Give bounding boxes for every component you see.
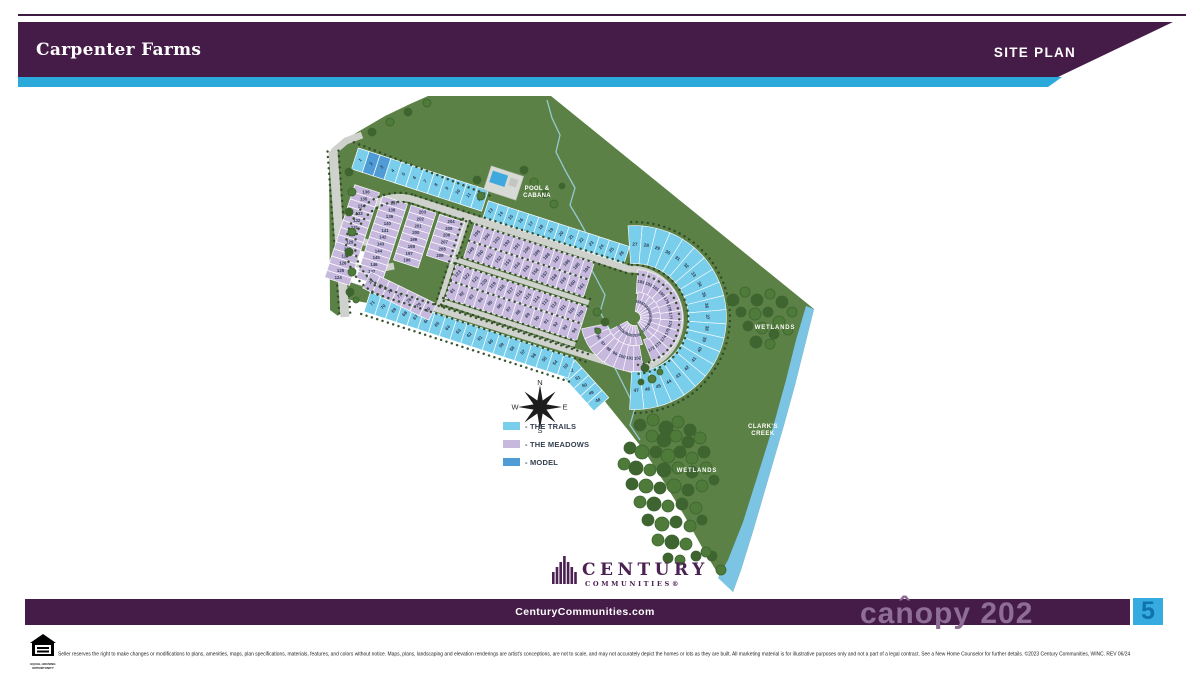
legal-disclaimer: Seller reserves the right to make change…: [58, 643, 1188, 661]
tree: [670, 516, 682, 528]
lot-number: 27: [632, 242, 638, 247]
tree: [626, 478, 638, 490]
tree: [701, 547, 711, 557]
tree: [661, 449, 675, 463]
tree: [618, 458, 630, 470]
equal-housing-caption-2: OPPORTUNITY: [28, 667, 58, 671]
tree: [638, 379, 644, 385]
tree: [694, 432, 706, 444]
lot-number: 47: [634, 388, 640, 393]
tree: [672, 416, 684, 428]
tree: [635, 445, 649, 459]
lot-number: 140: [384, 221, 392, 226]
tree: [345, 168, 353, 176]
lot-number: 125: [337, 268, 345, 273]
lot-number: 207: [441, 240, 449, 245]
legal-disclaimer-text: Seller reserves the right to make change…: [58, 652, 1130, 657]
tree: [348, 228, 356, 236]
lot-number: 146: [370, 262, 378, 267]
lot-number: 201: [414, 223, 422, 228]
century-communities-logo: CENTURYCOMMUNITIES®: [552, 556, 709, 588]
tree: [667, 479, 681, 493]
site-plan-map: 1234567891011121314151617181920212223242…: [0, 0, 1200, 675]
tree: [404, 108, 412, 116]
tree: [682, 484, 694, 496]
compass-e: E: [562, 403, 567, 412]
tree: [647, 497, 661, 511]
tree: [348, 268, 356, 276]
tree: [386, 118, 394, 126]
tree: [652, 534, 664, 546]
legend-swatch-meadows: [503, 440, 520, 448]
wetlands-label: WETLANDS: [677, 468, 717, 474]
lot-number: 139: [386, 214, 394, 219]
tree: [684, 520, 696, 532]
tree: [473, 176, 481, 184]
tree: [634, 419, 646, 431]
logo-subtext: COMMUNITIES®: [585, 580, 681, 588]
compass-w: W: [511, 403, 519, 412]
tree: [686, 452, 698, 464]
tree: [648, 375, 656, 383]
lot-number: 143: [377, 242, 385, 247]
tree: [601, 318, 609, 326]
lot-number: 144: [375, 248, 383, 253]
lot-number: 196: [403, 258, 411, 263]
tree: [763, 307, 773, 317]
tree: [641, 364, 649, 372]
tree: [765, 289, 775, 299]
tree: [751, 294, 763, 306]
legend-label-model: - MODEL: [525, 458, 558, 467]
tree: [657, 369, 663, 375]
tree: [684, 424, 696, 436]
lot-number: 202: [417, 217, 425, 222]
tree: [696, 480, 708, 492]
tree: [650, 446, 662, 458]
tree: [348, 188, 356, 196]
tree: [530, 178, 538, 186]
canopy-watermark: can̂opy 202: [860, 597, 1033, 631]
lot-number: 138: [388, 207, 396, 212]
lot-number: 124: [335, 275, 343, 280]
tree: [749, 308, 761, 320]
tree: [624, 442, 636, 454]
pool-cabana-label: CABANA: [523, 193, 551, 199]
tree: [674, 446, 686, 458]
logo-wordmark: CENTURY: [582, 560, 709, 580]
tree: [423, 99, 431, 107]
lot-number: 145: [373, 255, 381, 260]
legend-swatch-model: [503, 458, 520, 466]
lot-number: 199: [410, 237, 418, 242]
wetlands-label: WETLANDS: [755, 325, 795, 331]
tree: [644, 464, 656, 476]
tree: [665, 535, 679, 549]
lot-number: 177: [668, 312, 673, 320]
tree: [642, 514, 654, 526]
tree: [670, 430, 682, 442]
tree: [655, 517, 669, 531]
tree: [716, 565, 726, 575]
tree: [646, 430, 658, 442]
lot-number: 205: [445, 226, 453, 231]
tree: [346, 288, 354, 296]
tree: [477, 192, 485, 200]
lot-number: 135: [360, 197, 368, 202]
clarks-creek-label: CREEK: [751, 431, 775, 437]
tree: [736, 307, 746, 317]
tree: [662, 500, 674, 512]
lot-number: 102: [634, 355, 642, 361]
tree: [634, 496, 646, 508]
lot-number: 204: [447, 219, 455, 224]
tree: [345, 208, 353, 216]
tree: [698, 446, 710, 458]
tree: [750, 336, 762, 348]
site-plan-page: Carpenter Farms SITE PLAN 12345678910111…: [0, 0, 1200, 675]
lot-number: 197: [406, 251, 414, 256]
tree: [743, 321, 753, 331]
tree: [682, 436, 694, 448]
tree: [787, 307, 797, 317]
tree: [776, 296, 788, 308]
tree: [520, 166, 528, 174]
lot-number: 203: [419, 210, 427, 215]
lot-number: 209: [436, 253, 444, 258]
equal-housing-icon: [30, 634, 56, 658]
lot-number: 136: [362, 189, 370, 194]
tree: [654, 482, 666, 494]
lot-number: 37: [705, 314, 710, 320]
lot-number: 141: [381, 228, 389, 233]
lot-number: 206: [443, 233, 451, 238]
lot-number: 208: [439, 246, 447, 251]
tree: [639, 479, 653, 493]
equal-housing-logo: EQUAL HOUSING OPPORTUNITY: [28, 634, 58, 670]
tree: [727, 294, 739, 306]
tree: [676, 498, 688, 510]
tree: [368, 128, 376, 136]
lot-number: 142: [379, 235, 387, 240]
tree: [629, 461, 643, 475]
tree: [697, 515, 707, 525]
compass-n: N: [537, 378, 542, 387]
tree: [680, 538, 692, 550]
tree: [740, 287, 750, 297]
tree: [765, 339, 775, 349]
tree: [593, 308, 601, 316]
pool-cabana-label: POOL &: [525, 186, 550, 192]
legend-label-meadows: - THE MEADOWS: [525, 440, 589, 449]
tree: [559, 183, 565, 189]
canopy-watermark-square: 5: [1133, 598, 1163, 625]
tree: [657, 433, 671, 447]
tree: [550, 200, 558, 208]
clarks-creek-label: CLARK'S: [748, 424, 778, 430]
tree: [657, 463, 671, 477]
legend-swatch-trails: [503, 422, 520, 430]
legend-label-trails: - THE TRAILS: [525, 422, 576, 431]
tree: [595, 328, 601, 334]
tree: [690, 502, 702, 514]
lot-number: 126: [339, 261, 347, 266]
tree: [709, 475, 719, 485]
lot-number: 198: [408, 244, 416, 249]
lot-number: 200: [412, 230, 420, 235]
tree: [647, 414, 659, 426]
legend: - THE TRAILS- THE MEADOWS- MODEL: [503, 422, 589, 467]
tree: [353, 297, 359, 303]
tree: [345, 248, 353, 256]
